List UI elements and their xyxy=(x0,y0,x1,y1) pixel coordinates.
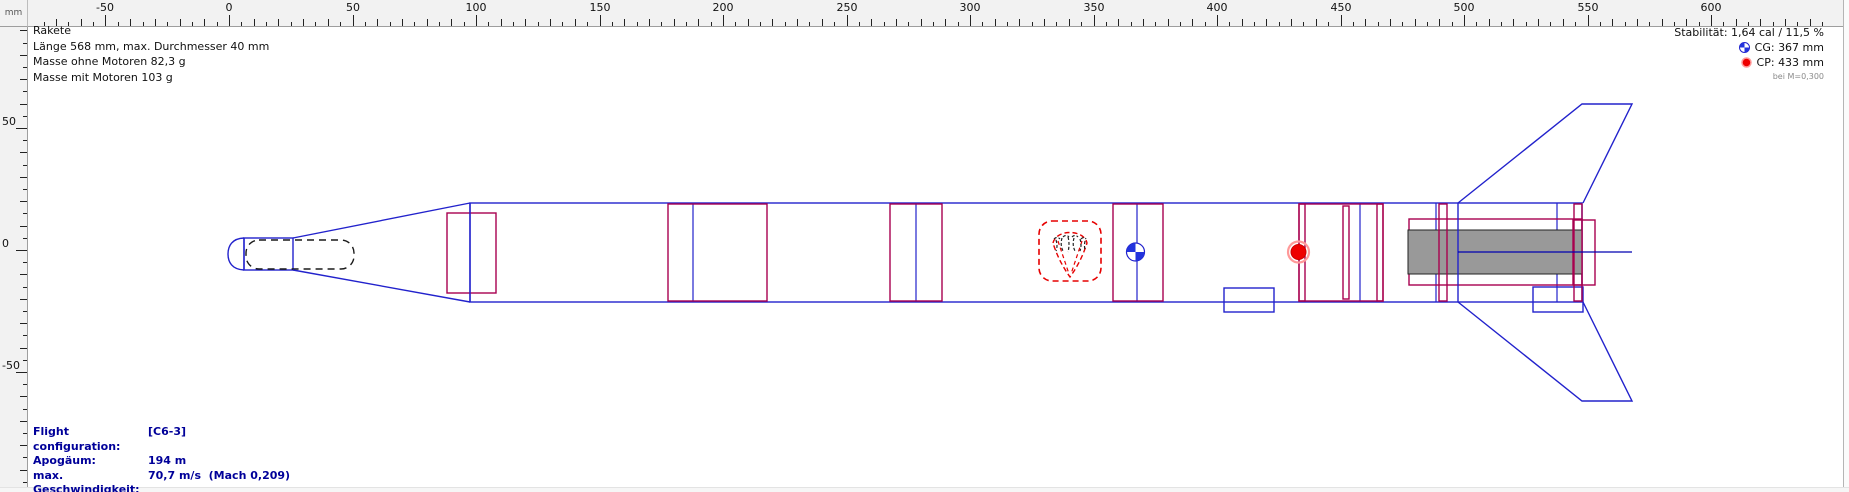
cg-marker[interactable] xyxy=(1126,243,1144,261)
right-panel-edge xyxy=(1844,0,1849,492)
ruler-tick xyxy=(1452,22,1453,26)
flight-row: max. Geschwindigkeit: 70,7 m/s (Mach 0,2… xyxy=(33,469,290,492)
ruler-tick xyxy=(933,22,934,26)
ruler-label: 150 xyxy=(580,1,620,14)
transition-shoulder[interactable] xyxy=(447,213,496,293)
ruler-tick xyxy=(1588,15,1589,26)
ruler-tick xyxy=(1168,19,1169,26)
ruler-tick xyxy=(390,22,391,26)
ruler-tick xyxy=(760,22,761,26)
ruler-tick xyxy=(20,445,27,446)
ruler-tick xyxy=(871,19,872,26)
parachute[interactable] xyxy=(1039,221,1101,281)
ruler-label: -50 xyxy=(85,1,125,14)
ruler-tick xyxy=(859,22,860,26)
ruler-tick xyxy=(427,19,428,26)
ruler-tick xyxy=(439,22,440,26)
ruler-tick xyxy=(23,43,27,44)
ruler-tick xyxy=(1081,22,1082,26)
ruler-tick xyxy=(896,19,897,26)
flight-row: Flight configuration: [C6-3] xyxy=(33,425,290,454)
vertical-ruler: 500-50 xyxy=(0,27,28,492)
ruler-unit-label: mm xyxy=(5,8,23,18)
ruler-label: 600 xyxy=(1691,1,1731,14)
openrocket-figure-view: -50050100150200250300350400450500550600 … xyxy=(0,0,1849,492)
ruler-tick xyxy=(278,19,279,26)
ruler-tick xyxy=(402,19,403,26)
ruler-tick xyxy=(1032,22,1033,26)
ruler-label: 500 xyxy=(1444,1,1484,14)
ruler-tick xyxy=(365,22,366,26)
ruler-tick xyxy=(1378,22,1379,26)
cg-legend-icon xyxy=(1739,42,1750,53)
ruler-tick xyxy=(945,19,946,26)
ruler-tick xyxy=(921,19,922,26)
ruler-tick xyxy=(884,22,885,26)
ruler-tick xyxy=(1600,22,1601,26)
ruler-tick xyxy=(1550,22,1551,26)
ruler-tick xyxy=(1303,22,1304,26)
ruler-tick xyxy=(23,140,27,141)
cg-value: CG: 367 mm xyxy=(1755,40,1824,55)
ruler-tick xyxy=(1118,19,1119,26)
ruler-tick xyxy=(414,22,415,26)
ruler-tick xyxy=(20,348,27,349)
ruler-label: 0 xyxy=(209,1,249,14)
ruler-tick xyxy=(1402,22,1403,26)
ruler-tick xyxy=(16,372,27,373)
ruler-tick xyxy=(353,15,354,26)
ruler-tick xyxy=(20,104,27,105)
ruler-tick xyxy=(20,177,27,178)
fin-top xyxy=(1458,104,1632,203)
ruler-tick xyxy=(20,396,27,397)
stability-mach-note: bei M=0,300 xyxy=(1674,70,1824,84)
cp-legend-icon xyxy=(1741,57,1752,68)
ruler-label: 350 xyxy=(1074,1,1114,14)
ruler-tick xyxy=(1501,22,1502,26)
stability-info: Stabilität: 1,64 cal / 11,5 % CG: 367 mm… xyxy=(1674,25,1824,84)
ruler-tick xyxy=(1266,19,1267,26)
ruler-tick xyxy=(1192,19,1193,26)
launch-lug-aft[interactable] xyxy=(1533,287,1583,312)
ruler-label: 400 xyxy=(1197,1,1237,14)
ejection-bay[interactable] xyxy=(1299,204,1383,301)
ruler-tick xyxy=(23,311,27,312)
max-velocity-value: 70,7 m/s (Mach 0,209) xyxy=(148,469,290,492)
ruler-tick xyxy=(1279,22,1280,26)
ruler-tick xyxy=(20,323,27,324)
ruler-tick xyxy=(525,19,526,26)
cp-marker[interactable] xyxy=(1288,242,1309,263)
ruler-tick xyxy=(23,165,27,166)
ruler-tick xyxy=(982,22,983,26)
ruler-tick xyxy=(908,22,909,26)
ruler-tick xyxy=(1513,19,1514,26)
rocket-mass-empty: Masse ohne Motoren 82,3 g xyxy=(33,54,269,70)
flight-row: Apogäum: 194 m xyxy=(33,454,290,469)
ruler-tick xyxy=(303,19,304,26)
ruler-tick xyxy=(513,22,514,26)
ruler-tick xyxy=(661,22,662,26)
ruler-tick xyxy=(20,152,27,153)
ruler-tick xyxy=(488,22,489,26)
ruler-tick xyxy=(501,19,502,26)
ruler-tick xyxy=(20,201,27,202)
ruler-tick xyxy=(1131,22,1132,26)
ruler-tick xyxy=(23,433,27,434)
ruler-tick xyxy=(20,79,27,80)
ruler-tick xyxy=(785,22,786,26)
ruler-tick xyxy=(23,287,27,288)
ruler-tick xyxy=(1476,22,1477,26)
ruler-tick xyxy=(1069,19,1070,26)
ruler-tick xyxy=(1415,19,1416,26)
ruler-tick xyxy=(451,19,452,26)
ruler-label: 200 xyxy=(703,1,743,14)
flight-data: Flight configuration: [C6-3] Apogäum: 19… xyxy=(33,425,290,492)
ruler-tick xyxy=(1489,19,1490,26)
ruler-tick xyxy=(23,384,27,385)
ruler-tick xyxy=(1662,19,1663,26)
max-velocity-label: max. Geschwindigkeit: xyxy=(33,469,148,492)
ruler-tick xyxy=(1612,19,1613,26)
ruler-label: 450 xyxy=(1321,1,1361,14)
ruler-tick xyxy=(723,15,724,26)
ruler-tick xyxy=(1229,22,1230,26)
ruler-tick xyxy=(16,250,27,251)
ruler-tick xyxy=(550,19,551,26)
ruler-tick xyxy=(1106,22,1107,26)
ruler-tick xyxy=(1242,19,1243,26)
nose-inner-component[interactable] xyxy=(246,240,354,269)
ruler-tick xyxy=(1538,19,1539,26)
ruler-label: -50 xyxy=(2,359,20,372)
fin-bottom xyxy=(1458,302,1632,401)
ruler-tick xyxy=(1291,19,1292,26)
ruler-tick xyxy=(23,335,27,336)
ruler-tick xyxy=(23,262,27,263)
ruler-tick xyxy=(538,22,539,26)
ruler-tick xyxy=(20,55,27,56)
ruler-tick xyxy=(1007,22,1008,26)
ruler-tick xyxy=(1526,22,1527,26)
rocket-name: Rakete xyxy=(33,23,269,39)
ruler-tick xyxy=(1427,22,1428,26)
ruler-tick xyxy=(1637,19,1638,26)
ruler-label: 50 xyxy=(2,115,16,128)
ruler-tick xyxy=(847,15,848,26)
ruler-tick xyxy=(711,22,712,26)
ruler-tick xyxy=(1180,22,1181,26)
stability-text: Stabilität: 1,64 cal / 11,5 % xyxy=(1674,25,1824,40)
transition-cone[interactable] xyxy=(293,203,470,302)
ruler-tick xyxy=(23,67,27,68)
ruler-tick xyxy=(822,19,823,26)
rocket-dimensions: Länge 568 mm, max. Durchmesser 40 mm xyxy=(33,39,269,55)
ruler-tick xyxy=(1328,22,1329,26)
ruler-tick xyxy=(600,15,601,26)
ruler-tick xyxy=(970,15,971,26)
apogee-label: Apogäum: xyxy=(33,454,148,469)
ruler-tick xyxy=(562,22,563,26)
ruler-tick xyxy=(328,19,329,26)
ruler-tick xyxy=(23,238,27,239)
ruler-tick xyxy=(1625,22,1626,26)
ruler-tick xyxy=(20,30,27,31)
ruler-tick xyxy=(649,19,650,26)
ruler-tick xyxy=(20,274,27,275)
ruler-tick xyxy=(1390,19,1391,26)
ruler-tick xyxy=(1439,19,1440,26)
ruler-tick xyxy=(797,19,798,26)
ruler-tick xyxy=(1094,15,1095,26)
rocket-info: Rakete Länge 568 mm, max. Durchmesser 40… xyxy=(33,23,269,85)
ruler-tick xyxy=(464,22,465,26)
ruler-tick xyxy=(1353,22,1354,26)
ruler-tick xyxy=(23,91,27,92)
ruler-tick xyxy=(1143,19,1144,26)
ruler-tick xyxy=(20,226,27,227)
ruler-tick xyxy=(748,19,749,26)
ruler-tick xyxy=(1056,22,1057,26)
ruler-tick xyxy=(1365,19,1366,26)
cp-value: CP: 433 mm xyxy=(1757,55,1824,70)
ruler-tick xyxy=(16,128,27,129)
ruler-tick xyxy=(20,299,27,300)
ruler-label: 0 xyxy=(2,237,9,250)
ruler-label: 50 xyxy=(333,1,373,14)
nose-tip[interactable] xyxy=(228,238,244,270)
ruler-tick xyxy=(23,189,27,190)
ruler-tick xyxy=(1563,19,1564,26)
ruler-tick xyxy=(23,409,27,410)
flight-config-value: [C6-3] xyxy=(148,425,186,454)
ruler-tick xyxy=(23,457,27,458)
ruler-tick xyxy=(23,360,27,361)
ruler-tick xyxy=(476,15,477,26)
ruler-tick xyxy=(20,470,27,471)
ruler-tick xyxy=(809,22,810,26)
ruler-tick xyxy=(958,22,959,26)
ruler-tick xyxy=(291,22,292,26)
launch-lug-fore[interactable] xyxy=(1224,288,1274,312)
ruler-tick xyxy=(23,482,27,483)
rocket-mass-with-motors: Masse mit Motoren 103 g xyxy=(33,70,269,86)
ruler-tick xyxy=(698,19,699,26)
flight-config-label: Flight configuration: xyxy=(33,425,148,454)
ruler-tick xyxy=(686,22,687,26)
ruler-tick xyxy=(1254,22,1255,26)
ruler-tick xyxy=(1316,19,1317,26)
ruler-label: 550 xyxy=(1568,1,1608,14)
ruler-tick xyxy=(834,22,835,26)
ruler-tick xyxy=(1044,19,1045,26)
ruler-tick xyxy=(1464,15,1465,26)
ruler-tick xyxy=(735,22,736,26)
ruler-tick xyxy=(674,19,675,26)
ruler-tick xyxy=(1155,22,1156,26)
ruler-tick xyxy=(575,19,576,26)
ruler-tick xyxy=(587,22,588,26)
ruler-tick xyxy=(612,22,613,26)
rocket-diagram[interactable] xyxy=(0,0,1849,492)
ruler-unit-box: mm xyxy=(0,0,28,27)
apogee-value: 194 m xyxy=(148,454,186,469)
ruler-label: 300 xyxy=(950,1,990,14)
ruler-label: 250 xyxy=(827,1,867,14)
ruler-tick xyxy=(637,22,638,26)
ruler-tick xyxy=(377,19,378,26)
ruler-tick xyxy=(1649,22,1650,26)
ruler-tick xyxy=(1205,22,1206,26)
horizontal-ruler: -50050100150200250300350400450500550600 xyxy=(0,0,1849,27)
ruler-tick xyxy=(23,213,27,214)
ruler-tick xyxy=(624,19,625,26)
ruler-tick xyxy=(1575,22,1576,26)
ruler-tick xyxy=(995,19,996,26)
ruler-tick xyxy=(23,116,27,117)
tube-coupler-1[interactable] xyxy=(668,204,767,301)
ruler-tick xyxy=(1341,15,1342,26)
ruler-label: 100 xyxy=(456,1,496,14)
ruler-tick xyxy=(315,22,316,26)
ruler-tick xyxy=(772,19,773,26)
ruler-tick xyxy=(340,22,341,26)
ruler-tick xyxy=(1019,19,1020,26)
ruler-tick xyxy=(20,421,27,422)
ruler-tick xyxy=(1217,15,1218,26)
